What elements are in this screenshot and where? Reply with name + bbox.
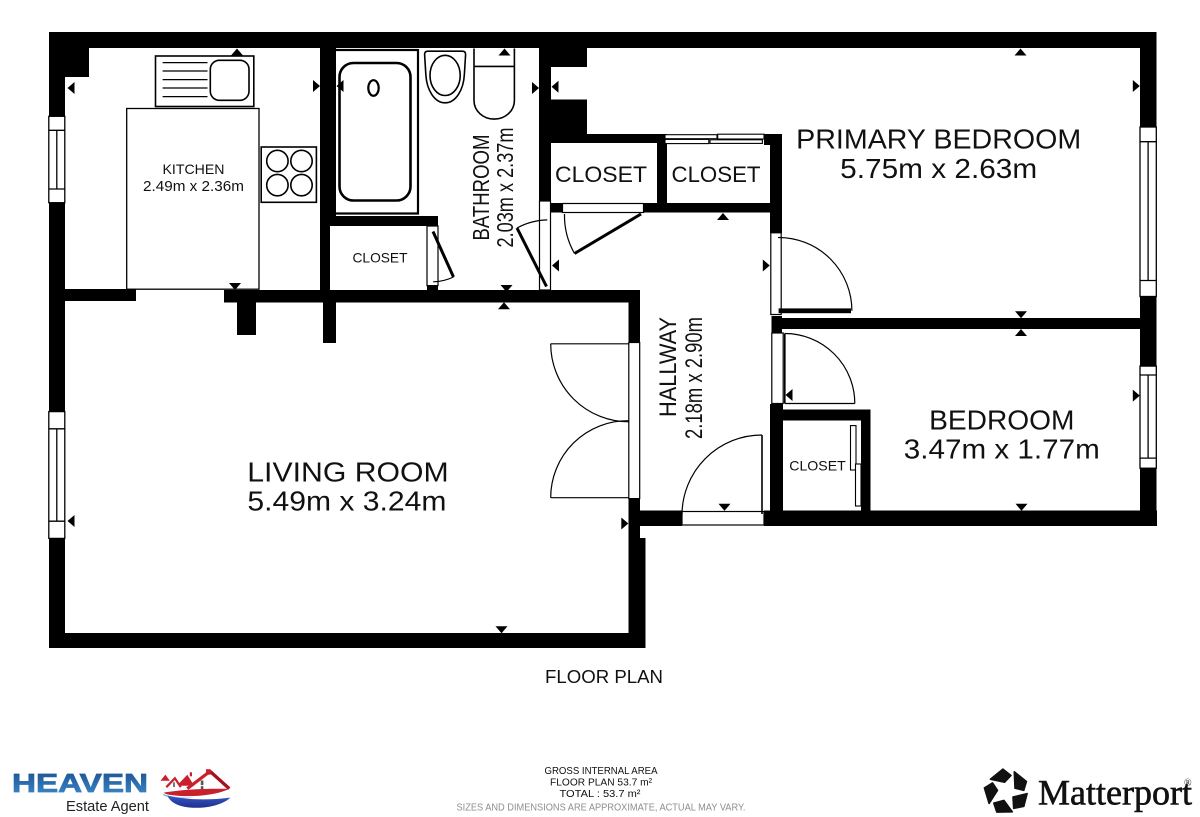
svg-text:CLOSET: CLOSET: [555, 162, 647, 187]
svg-text:Matterport: Matterport: [1038, 773, 1192, 813]
svg-text:TOTAL : 53.7 m²: TOTAL : 53.7 m²: [560, 789, 642, 800]
svg-text:GROSS INTERNAL AREA: GROSS INTERNAL AREA: [545, 766, 658, 777]
svg-text:2.03m x 2.37m: 2.03m x 2.37m: [492, 128, 518, 248]
svg-text:®: ®: [1184, 778, 1192, 789]
svg-text:2.49m x 2.36m: 2.49m x 2.36m: [143, 179, 244, 195]
svg-text:HALLWAY: HALLWAY: [655, 317, 682, 417]
svg-text:5.49m x 3.24m: 5.49m x 3.24m: [247, 486, 446, 517]
svg-text:3.47m x 1.77m: 3.47m x 1.77m: [904, 434, 1100, 465]
svg-text:5.75m x 2.63m: 5.75m x 2.63m: [840, 153, 1037, 184]
svg-text:FLOOR PLAN: FLOOR PLAN: [545, 667, 663, 687]
svg-text:BATHROOM: BATHROOM: [468, 135, 494, 241]
svg-text:FLOOR PLAN 53.7 m²: FLOOR PLAN 53.7 m²: [550, 778, 653, 789]
svg-text:Estate Agent: Estate Agent: [66, 799, 149, 815]
svg-text:SIZES AND DIMENSIONS ARE APPRO: SIZES AND DIMENSIONS ARE APPROXIMATE, AC…: [457, 802, 746, 814]
svg-text:LIVING ROOM: LIVING ROOM: [247, 457, 449, 488]
svg-text:CLOSET: CLOSET: [353, 250, 408, 266]
svg-text:CLOSET: CLOSET: [789, 458, 846, 474]
svg-text:BEDROOM: BEDROOM: [929, 405, 1074, 436]
svg-text:HEAVEN: HEAVEN: [12, 768, 148, 798]
svg-text:KITCHEN: KITCHEN: [163, 161, 225, 177]
svg-text:PRIMARY BEDROOM: PRIMARY BEDROOM: [796, 124, 1081, 155]
svg-text:CLOSET: CLOSET: [672, 162, 761, 187]
svg-text:2.18m x 2.90m: 2.18m x 2.90m: [681, 317, 708, 439]
